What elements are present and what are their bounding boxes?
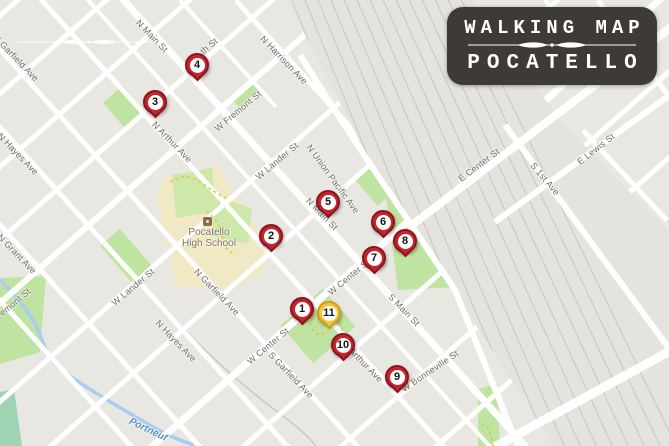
map-pin-5[interactable]: 5 (316, 190, 340, 214)
walking-map-canvas: Pocatello High School Portneuf N Main St… (0, 0, 669, 446)
map-pin-6[interactable]: 6 (371, 210, 395, 234)
pin-number: 5 (321, 195, 336, 210)
map-pin-8[interactable]: 8 (393, 229, 417, 253)
badge-title-line2: POCATELLO (460, 52, 643, 75)
map-pin-2[interactable]: 2 (259, 224, 283, 248)
pin-number: 1 (295, 302, 310, 317)
title-badge: WALKING MAP POCATELLO (447, 7, 657, 85)
map-pin-9[interactable]: 9 (385, 365, 409, 389)
pin-number: 3 (148, 95, 163, 110)
map-pin-3[interactable]: 3 (143, 90, 167, 114)
pin-number: 2 (264, 229, 279, 244)
map-pin-1[interactable]: 1 (290, 297, 314, 321)
pin-number: 11 (322, 306, 337, 321)
pin-number: 8 (398, 234, 413, 249)
pin-number: 9 (390, 370, 405, 385)
pin-number: 4 (190, 58, 205, 73)
pin-number: 6 (376, 215, 391, 230)
map-pin-10[interactable]: 10 (331, 333, 355, 357)
map-pin-4[interactable]: 4 (185, 53, 209, 77)
map-pin-7[interactable]: 7 (362, 246, 386, 270)
badge-title-line1: WALKING MAP (459, 17, 644, 39)
pin-number: 10 (336, 338, 351, 353)
map-pin-11[interactable]: 11 (317, 301, 341, 325)
pin-number: 7 (367, 251, 382, 266)
badge-divider-ornament (462, 40, 642, 50)
